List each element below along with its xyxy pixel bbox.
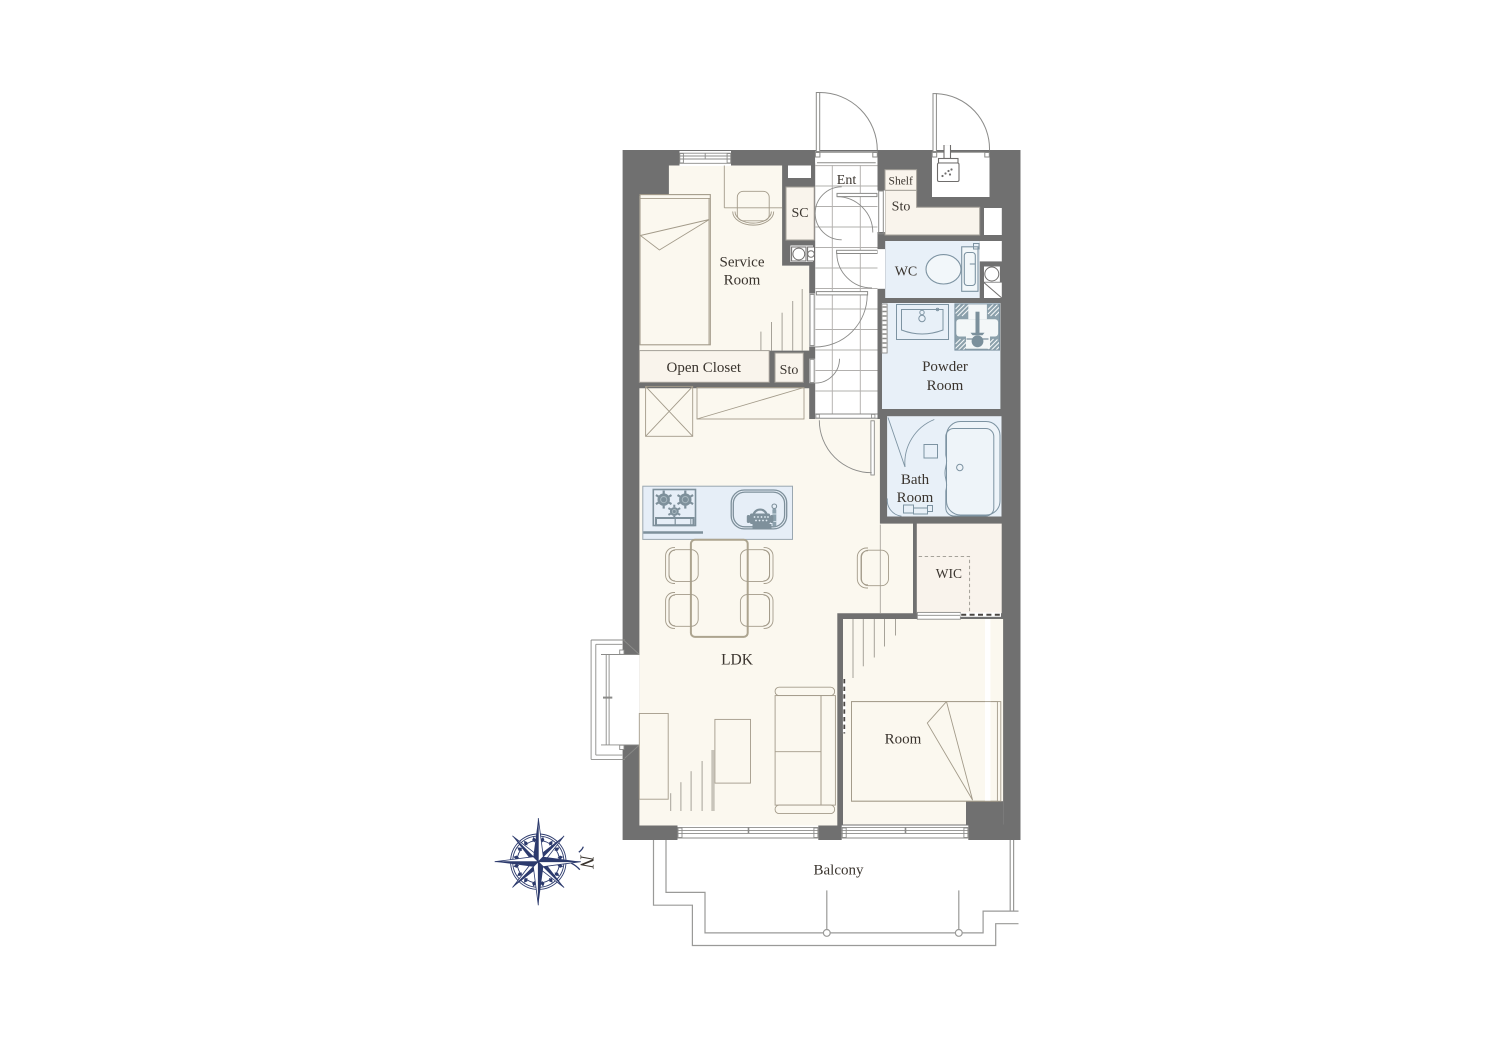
svg-text:Bath: Bath bbox=[901, 472, 930, 488]
svg-text:Ent: Ent bbox=[837, 173, 857, 188]
svg-text:N: N bbox=[576, 854, 598, 870]
svg-text:SC: SC bbox=[791, 206, 808, 221]
svg-text:Shelf: Shelf bbox=[889, 176, 913, 188]
svg-text:WC: WC bbox=[895, 265, 918, 280]
svg-text:Room: Room bbox=[885, 732, 922, 748]
svg-text:Balcony: Balcony bbox=[814, 863, 864, 879]
svg-text:Room: Room bbox=[724, 273, 761, 289]
svg-text:Sto: Sto bbox=[892, 200, 911, 215]
svg-text:WIC: WIC bbox=[936, 566, 962, 581]
svg-text:Sto: Sto bbox=[780, 363, 799, 378]
svg-text:Service: Service bbox=[720, 255, 765, 271]
svg-text:Room: Room bbox=[927, 378, 964, 394]
svg-text:Room: Room bbox=[897, 490, 934, 506]
svg-text:LDK: LDK bbox=[721, 652, 754, 669]
svg-text:Open Closet: Open Closet bbox=[667, 360, 742, 376]
svg-text:Powder: Powder bbox=[922, 359, 968, 375]
